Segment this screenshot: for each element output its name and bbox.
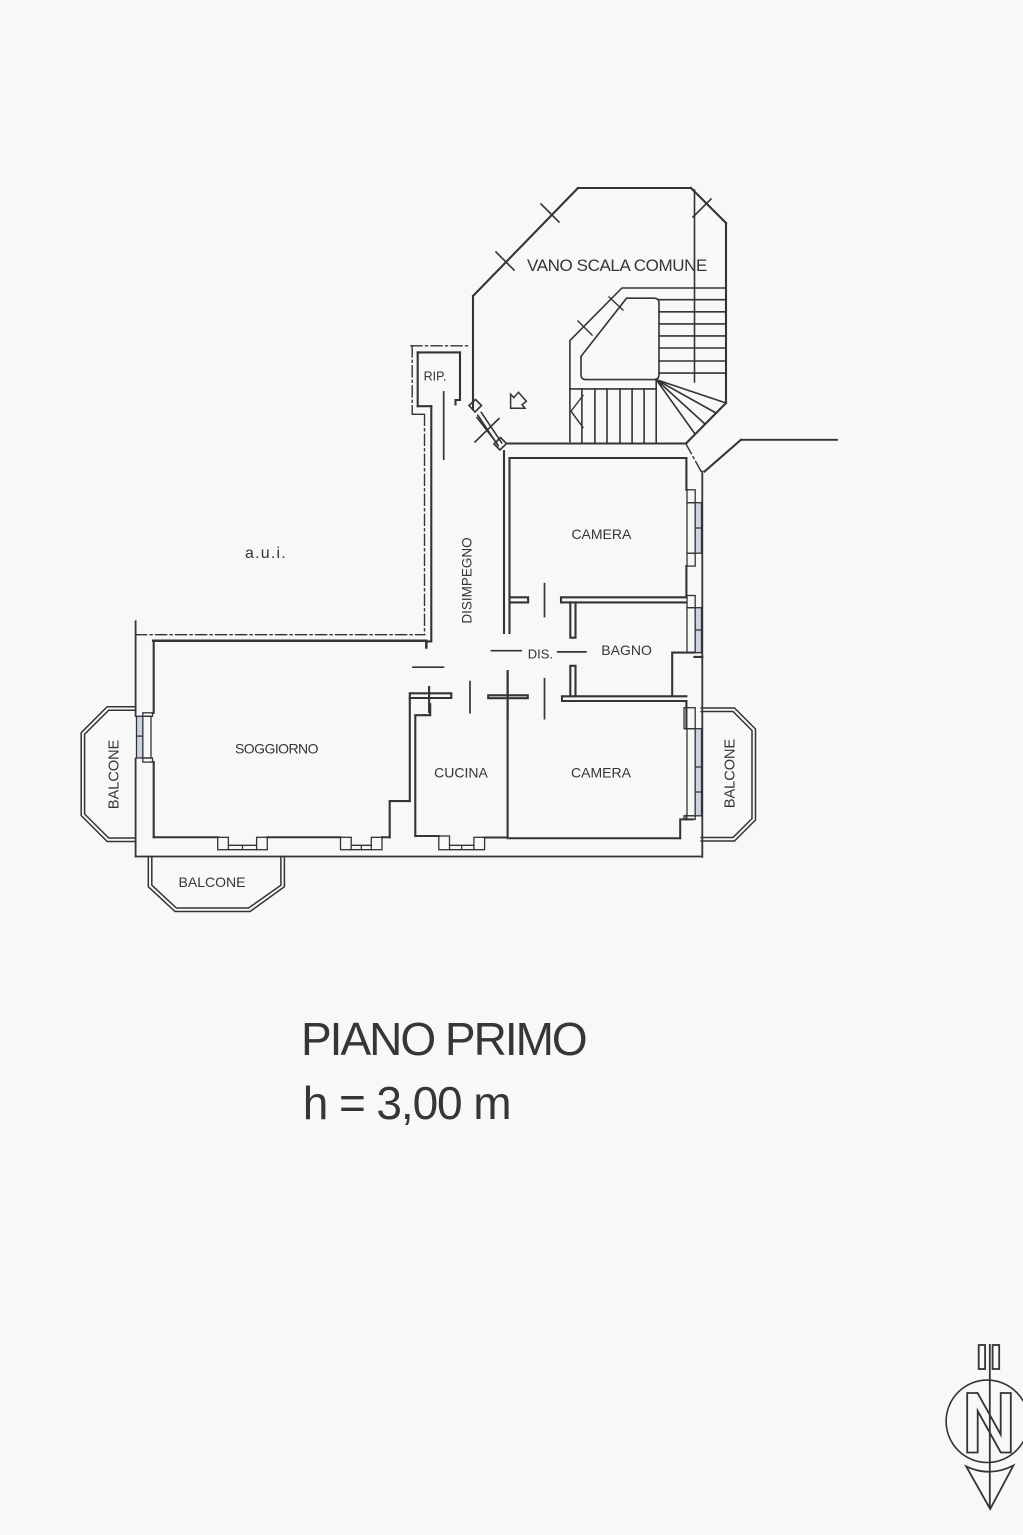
svg-text:SOGGIORNO: SOGGIORNO: [235, 741, 319, 757]
svg-text:RIP.: RIP.: [424, 370, 447, 384]
svg-text:DISIMPEGNO: DISIMPEGNO: [460, 537, 475, 623]
svg-text:a.u.i.: a.u.i.: [245, 545, 287, 562]
svg-text:PIANO PRIMO: PIANO PRIMO: [301, 1013, 586, 1065]
svg-text:h = 3,00 m: h = 3,00 m: [303, 1077, 511, 1129]
svg-text:VANO SCALA COMUNE: VANO SCALA COMUNE: [527, 256, 707, 275]
svg-text:BAGNO: BAGNO: [601, 642, 652, 658]
svg-text:CAMERA: CAMERA: [571, 526, 632, 542]
svg-text:BALCONE: BALCONE: [106, 739, 122, 809]
svg-text:CAMERA: CAMERA: [571, 764, 632, 780]
svg-text:BALCONE: BALCONE: [723, 739, 739, 809]
svg-text:BALCONE: BALCONE: [179, 874, 246, 890]
svg-text:CUCINA: CUCINA: [434, 765, 488, 781]
svg-text:DIS.: DIS.: [528, 646, 553, 661]
